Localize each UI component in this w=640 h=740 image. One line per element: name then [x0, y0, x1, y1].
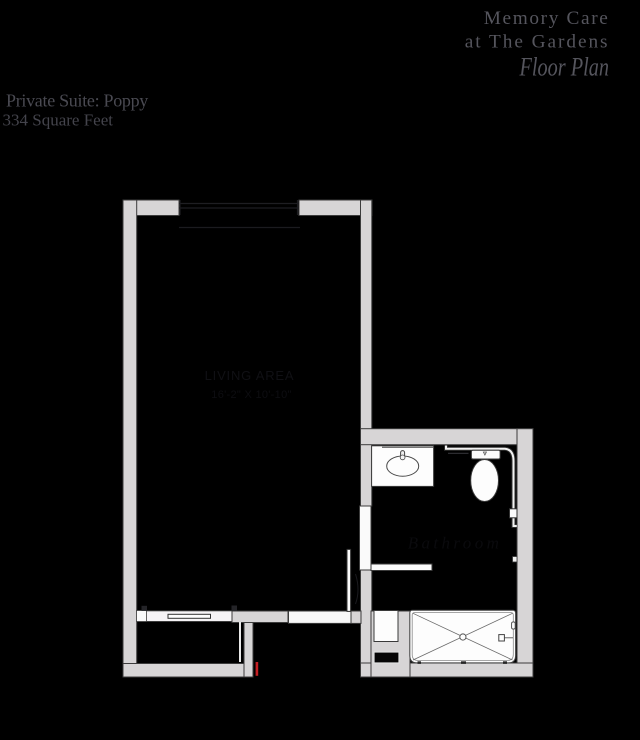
svg-text:Memory Care: Memory Care — [484, 8, 610, 29]
svg-text:LIVING AREA: LIVING AREA — [205, 368, 295, 383]
svg-text:Bathroom: Bathroom — [408, 534, 503, 553]
svg-text:16'-2" X 10'-10": 16'-2" X 10'-10" — [211, 389, 291, 401]
svg-text:334 Square Feet: 334 Square Feet — [3, 111, 114, 130]
svg-text:Private Suite: Poppy: Private Suite: Poppy — [6, 91, 148, 111]
svg-text:Floor Plan: Floor Plan — [519, 53, 609, 82]
svg-text:at The Gardens: at The Gardens — [465, 31, 610, 52]
